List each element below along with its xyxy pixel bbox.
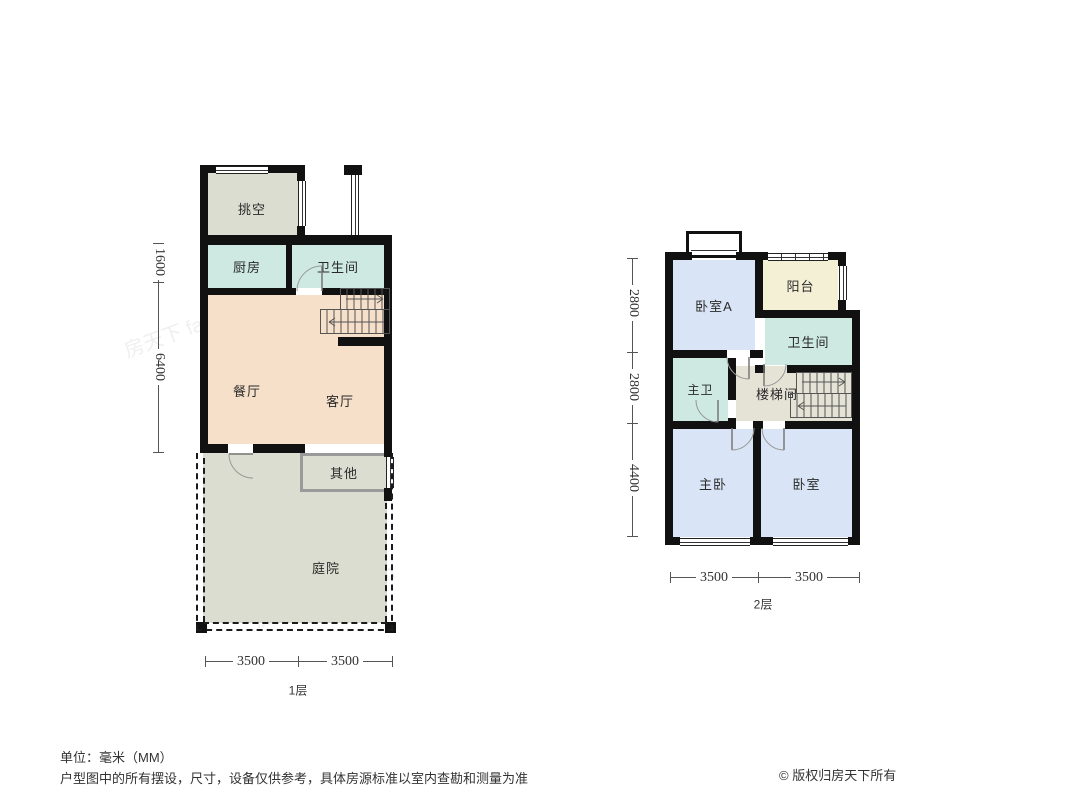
yard-boundary [385,503,387,622]
floorplan-canvas: 房天下 fang.com 房天下 fang.com 房天下 fang.com 挑… [0,0,1066,800]
door-arc [762,427,786,451]
window [298,181,306,226]
wall [200,288,296,295]
wall [665,537,680,545]
floor2-label: 2层 [754,596,773,613]
window [680,538,750,546]
wall [253,444,305,453]
room-label-yard: 庭院 [312,558,340,577]
door-arc [726,356,750,380]
dim-label: 3500 [696,570,732,586]
room-label-bath-f2: 卫生间 [787,332,829,351]
dim-label: 3500 [791,570,827,586]
room-label-void: 挑空 [238,199,266,218]
wall [338,337,392,346]
wall [736,252,768,260]
bay-window [686,231,742,258]
wall-thin [300,453,303,492]
window [773,538,848,546]
floor1-label: 1层 [289,682,308,699]
yard-boundary [391,453,393,631]
window [839,266,847,300]
wall [665,252,673,545]
wall [384,235,392,457]
dim-label: 6400 [151,349,167,385]
unit-note: 单位：毫米（MM） [60,747,173,766]
wall [665,252,692,260]
wall [785,421,860,429]
dim-label: 2800 [625,369,641,405]
wall [200,165,208,453]
room-label-dining: 餐厅 [233,381,261,400]
dimension-tick [670,572,671,583]
room-label-living: 客厅 [326,391,354,410]
window [216,166,268,174]
wall [750,537,773,545]
room-label-other: 其他 [330,463,358,482]
dimension-tick [627,536,638,537]
window [768,253,828,261]
wall [750,350,763,358]
room-label-master-bath: 主卫 [687,381,713,398]
room-label-balcony: 阳台 [786,276,814,295]
room-label-bedroomA: 卧室A [695,296,733,315]
dimension-tick [859,572,860,583]
dimension-tick [153,282,164,283]
room-label-master-bedroom: 主卧 [699,474,727,493]
wall [344,165,362,175]
dimension-tick [627,423,638,424]
dimension-tick [627,352,638,353]
wall [665,350,727,358]
disclaimer: 户型图中的所有摆设，尺寸，设备仅供参考，具体房源标准以室内查勘和测量为准 [60,768,528,787]
dim-label: 3500 [233,654,269,670]
room-other: 其他 [302,456,386,489]
room-bedroomA: 卧室A [673,260,755,350]
yard-boundary [203,622,387,624]
dimension-tick [298,656,299,667]
room-bath-f2: 卫生间 [765,318,852,365]
door-arc [763,363,787,387]
room-label-bedroom: 卧室 [792,474,820,493]
dim-label: 2800 [625,285,641,321]
door-arc [228,453,254,479]
dimension-tick [153,452,164,453]
wall [755,252,763,318]
staircase-f1 [318,286,392,338]
copyright: © 版权归房天下所有 [779,765,896,784]
wall [838,252,846,266]
wall [200,235,392,245]
yard-boundary [203,458,205,622]
room-label-kitchen: 厨房 [233,257,261,276]
dimension-tick [627,258,638,259]
yard-boundary [196,453,198,631]
dimension-tick [758,572,759,583]
staircase-f2 [788,370,854,422]
wall [200,444,228,453]
door-arc [696,399,719,423]
wall [286,245,292,288]
yard-boundary [196,629,394,631]
dim-label: 4400 [625,460,641,496]
room-void: 挑空 [205,173,299,243]
room-label-bath-f1: 卫生间 [317,257,359,276]
dim-label: 1600 [151,244,167,280]
wall-thin [300,453,390,456]
wall [848,537,860,545]
room-kitchen: 厨房 [208,245,286,288]
dimension-tick [205,656,206,667]
wall [297,165,305,181]
dim-label: 3500 [327,654,363,670]
door-arc [731,427,755,451]
dimension-tick [392,656,393,667]
wall-thin [300,489,390,492]
wall [755,310,852,318]
room-balcony: 阳台 [763,260,838,310]
window [351,175,359,235]
